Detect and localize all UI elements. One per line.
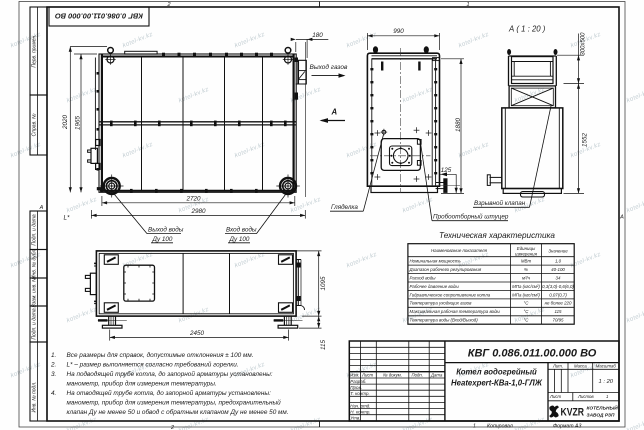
svg-text:Т. контр.: Т. контр. xyxy=(350,391,369,396)
svg-text:Все размеры для справок, допус: Все размеры для справок, допустимые откл… xyxy=(67,351,254,359)
svg-text:1880: 1880 xyxy=(455,118,462,133)
svg-text:Значение: Значение xyxy=(548,248,568,253)
svg-text:измерения: измерения xyxy=(515,251,538,256)
svg-text:115: 115 xyxy=(320,339,327,350)
svg-text:А: А xyxy=(619,215,624,221)
svg-text:2: 2 xyxy=(170,425,174,430)
svg-text:Подп. и дата: Подп. и дата xyxy=(31,308,37,340)
svg-text:манометр, прибор для измерения: манометр, прибор для измерения температу… xyxy=(67,380,217,388)
svg-text:Пробоотборный штуцер: Пробоотборный штуцер xyxy=(433,213,509,221)
svg-text:Гляделка: Гляделка xyxy=(331,203,358,211)
svg-text:Нач. отд.: Нач. отд. xyxy=(350,403,370,408)
svg-text:МВт: МВт xyxy=(521,259,532,264)
svg-text:40-100: 40-100 xyxy=(551,267,565,272)
svg-text:На подводящей трубе котла, до: На подводящей трубе котла, до запорной а… xyxy=(67,370,273,378)
svg-text:L* – размер выполняется соглас: L* – размер выполняется согласно требова… xyxy=(67,361,239,369)
svg-text:Наименование показателя: Наименование показателя xyxy=(431,248,488,253)
svg-text:МПа (кгс/см²): МПа (кгс/см²) xyxy=(512,292,540,297)
svg-text:2: 2 xyxy=(166,2,170,8)
svg-text:1552: 1552 xyxy=(581,133,588,148)
svg-text:3.: 3. xyxy=(51,371,56,378)
svg-text:Вход воды: Вход воды xyxy=(226,226,257,234)
svg-text:Котел водогрейный: Котел водогрейный xyxy=(456,368,537,377)
svg-text:115: 115 xyxy=(555,309,563,314)
svg-text:Heatexpert-КВа-1,0-ГЛЖ: Heatexpert-КВа-1,0-ГЛЖ xyxy=(451,379,543,388)
svg-text:Пров.: Пров. xyxy=(350,385,362,390)
svg-text:Ду 100: Ду 100 xyxy=(152,236,173,243)
svg-text:Техническая характеристика: Техническая характеристика xyxy=(439,231,555,240)
svg-text:Взам. инв. №: Взам. инв. № xyxy=(31,276,37,308)
svg-text:0,07(0,7): 0,07(0,7) xyxy=(549,292,567,297)
svg-text:Подп. и дата: Подп. и дата xyxy=(31,214,37,246)
svg-text:Номинальная мощность: Номинальная мощность xyxy=(410,259,462,264)
svg-text:А ( 1 : 20 ): А ( 1 : 20 ) xyxy=(508,25,546,34)
svg-text:1,0: 1,0 xyxy=(555,259,562,264)
svg-text:1 : 20: 1 : 20 xyxy=(599,379,614,385)
svg-text:Справ. №: Справ. № xyxy=(31,113,37,136)
svg-text:4.: 4. xyxy=(51,390,56,397)
svg-text:клапан Ду не менее 50 и обвод: клапан Ду не менее 50 и обвод с обратным… xyxy=(67,408,289,416)
svg-text:№ докум.: № докум. xyxy=(383,373,402,378)
svg-text:1965: 1965 xyxy=(75,116,82,131)
svg-text:А: А xyxy=(39,205,44,211)
svg-text:Копировал: Копировал xyxy=(487,424,513,430)
svg-text:Лист: Лист xyxy=(361,373,373,378)
svg-text:Ду 100: Ду 100 xyxy=(229,236,250,243)
svg-text:%: % xyxy=(524,267,528,272)
svg-text:Дата: Дата xyxy=(430,373,443,378)
svg-text:2720: 2720 xyxy=(185,195,201,202)
svg-text:Масса: Масса xyxy=(574,364,587,369)
svg-text:Взрывной клапан: Взрывной клапан xyxy=(474,199,526,207)
svg-text:Единицы: Единицы xyxy=(517,246,536,251)
svg-text:не более 220: не более 220 xyxy=(545,301,572,306)
svg-text:Рабочее давление воды: Рабочее давление воды xyxy=(410,284,460,289)
svg-text:Лит.: Лит. xyxy=(552,364,563,369)
svg-text:Н. контр.: Н. контр. xyxy=(350,410,370,415)
svg-text:34: 34 xyxy=(556,275,561,280)
svg-text:Выход воды: Выход воды xyxy=(148,226,184,234)
svg-text:1: 1 xyxy=(473,424,476,430)
svg-text:Масштаб: Масштаб xyxy=(596,364,617,369)
svg-text:А: А xyxy=(331,108,338,117)
svg-text:0,3(3,0)-0,6(6,0): 0,3(3,0)-0,6(6,0) xyxy=(542,284,574,289)
svg-text:Инв. № дубл.: Инв. № дубл. xyxy=(31,248,37,279)
svg-text:Температура воды (Вход/Выход): Температура воды (Вход/Выход) xyxy=(410,318,479,323)
svg-text:МПа (кгс/см²): МПа (кгс/см²) xyxy=(512,284,540,289)
svg-text:Утв.: Утв. xyxy=(350,416,360,421)
svg-text:Формат А3: Формат А3 xyxy=(553,424,581,430)
svg-text:70/95: 70/95 xyxy=(553,318,565,323)
svg-text:На отводящей трубе котла, до з: На отводящей трубе котла, до запорной ар… xyxy=(67,389,272,397)
svg-text:м³/ч: м³/ч xyxy=(522,275,531,280)
svg-text:Изм.: Изм. xyxy=(350,373,359,378)
svg-text:°С: °С xyxy=(524,309,530,314)
svg-text:Диапазон рабочего регулировани: Диапазон рабочего регулирования xyxy=(409,267,482,272)
svg-text:2020: 2020 xyxy=(62,115,69,131)
svg-text:Максимальная рабочая температу: Максимальная рабочая температура воды xyxy=(410,309,501,314)
svg-text:Перв. примен.: Перв. примен. xyxy=(31,34,37,67)
svg-text:KVZR: KVZR xyxy=(561,407,585,419)
svg-text:Расход воды: Расход воды xyxy=(410,275,437,280)
svg-text:2450: 2450 xyxy=(189,330,205,337)
svg-text:990: 990 xyxy=(393,28,404,35)
svg-text:1.: 1. xyxy=(51,352,56,359)
svg-text:L*: L* xyxy=(64,215,71,222)
svg-text:Гидравлическое сопротивление к: Гидравлическое сопротивление котла xyxy=(410,292,491,297)
svg-text:Подп.: Подп. xyxy=(412,373,423,378)
svg-text:Инв. № подл.: Инв. № подл. xyxy=(31,381,37,412)
svg-text:ЗАВОД РЗП: ЗАВОД РЗП xyxy=(587,413,615,419)
svg-text:300х500: 300х500 xyxy=(580,32,586,56)
svg-text:125: 125 xyxy=(441,167,452,174)
svg-text:2.: 2. xyxy=(50,362,56,369)
svg-text:КВГ 0.086.011.00.000 ВО: КВГ 0.086.011.00.000 ВО xyxy=(468,348,597,360)
svg-text:180: 180 xyxy=(312,32,323,39)
svg-text:Выход газов: Выход газов xyxy=(310,63,348,71)
svg-text:манометр, прибор для измерения: манометр, прибор для измерения температу… xyxy=(67,399,282,407)
svg-text:1: 1 xyxy=(466,2,469,8)
svg-text:Листов: Листов xyxy=(577,394,594,399)
svg-text:КВГ 0.086.011.00.000 ВО: КВГ 0.086.011.00.000 ВО xyxy=(55,12,143,21)
svg-text:Разраб.: Разраб. xyxy=(350,379,366,384)
svg-text:Температура уходящих газов: Температура уходящих газов xyxy=(410,301,473,306)
svg-text:°С: °С xyxy=(524,318,530,323)
svg-text:2980: 2980 xyxy=(190,208,206,215)
svg-text:°С: °С xyxy=(524,301,530,306)
svg-text:1095: 1095 xyxy=(320,276,327,291)
svg-text:Лист: Лист xyxy=(549,394,561,399)
